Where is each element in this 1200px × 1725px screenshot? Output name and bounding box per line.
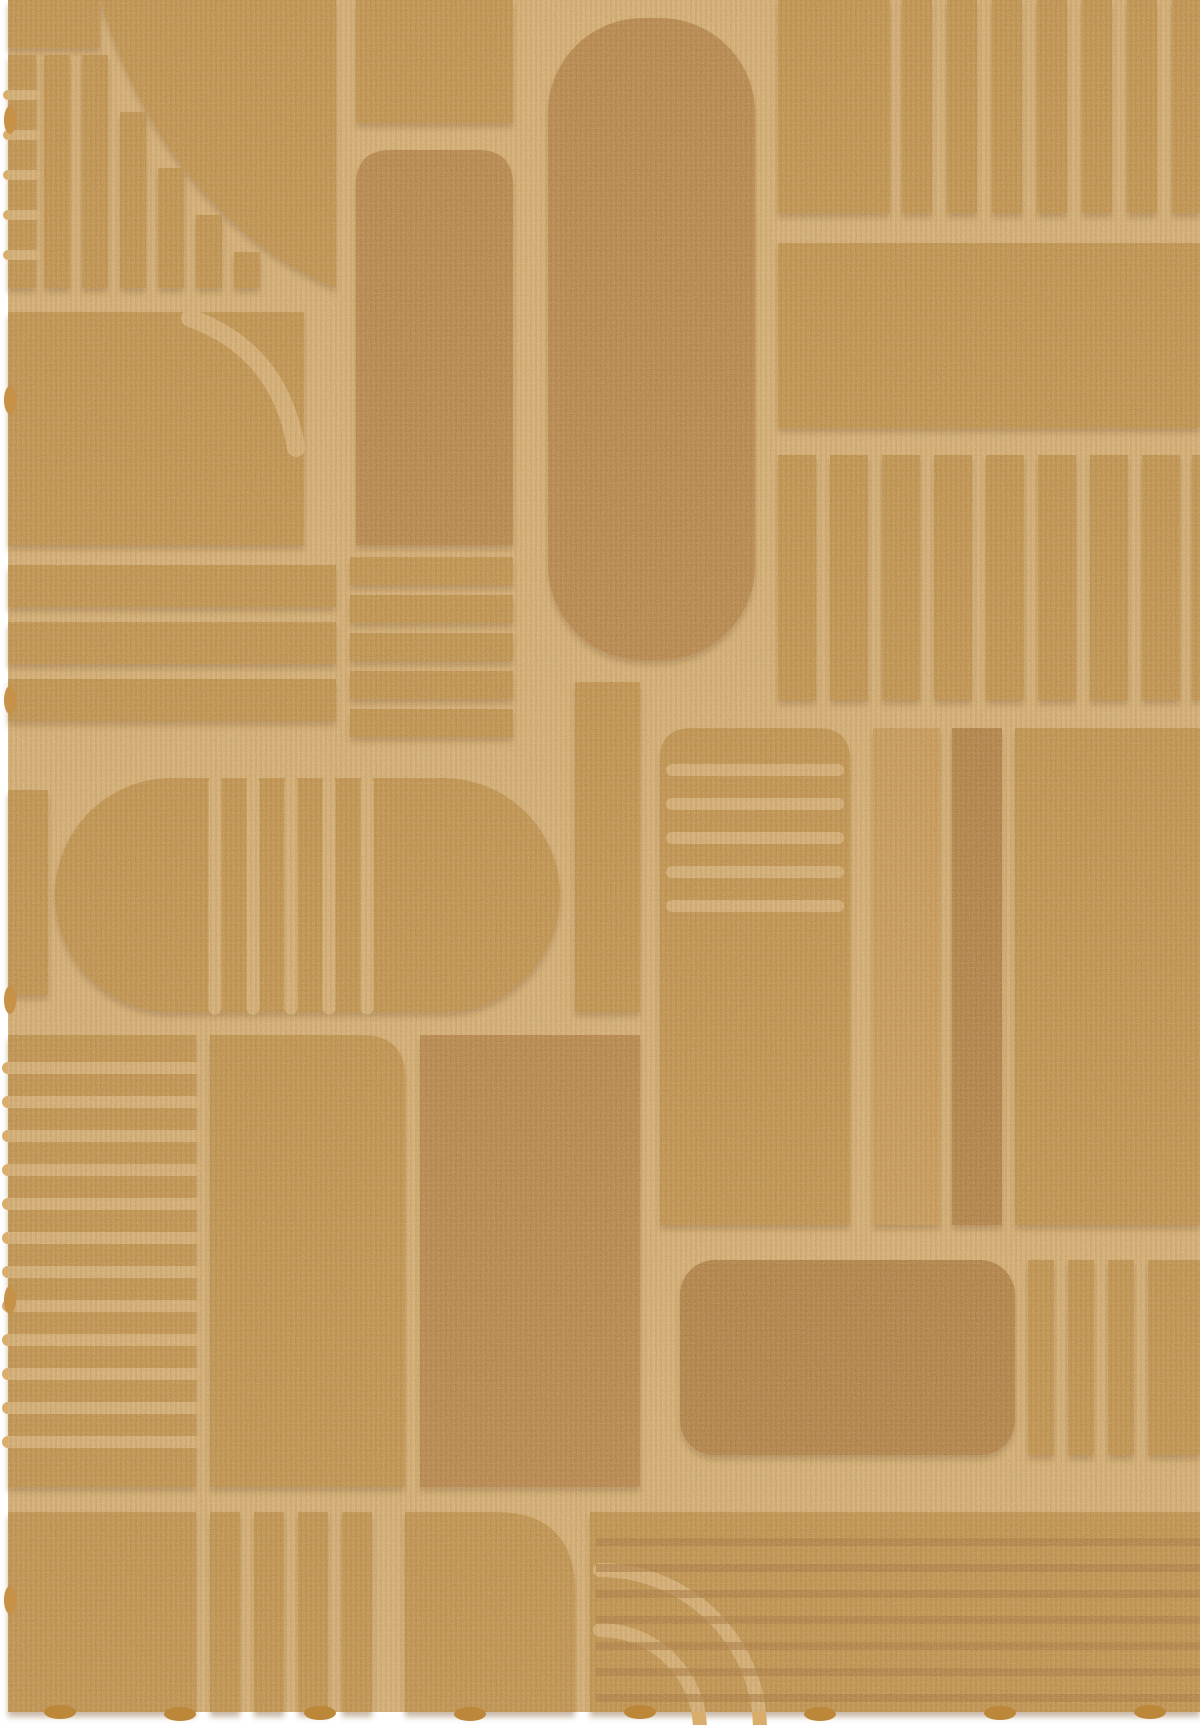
rug-illustration: [0, 0, 1200, 1725]
photo-canvas: [0, 0, 1200, 1725]
rug-photo: [0, 0, 1200, 1725]
texture-overlays: [8, 0, 1200, 1712]
